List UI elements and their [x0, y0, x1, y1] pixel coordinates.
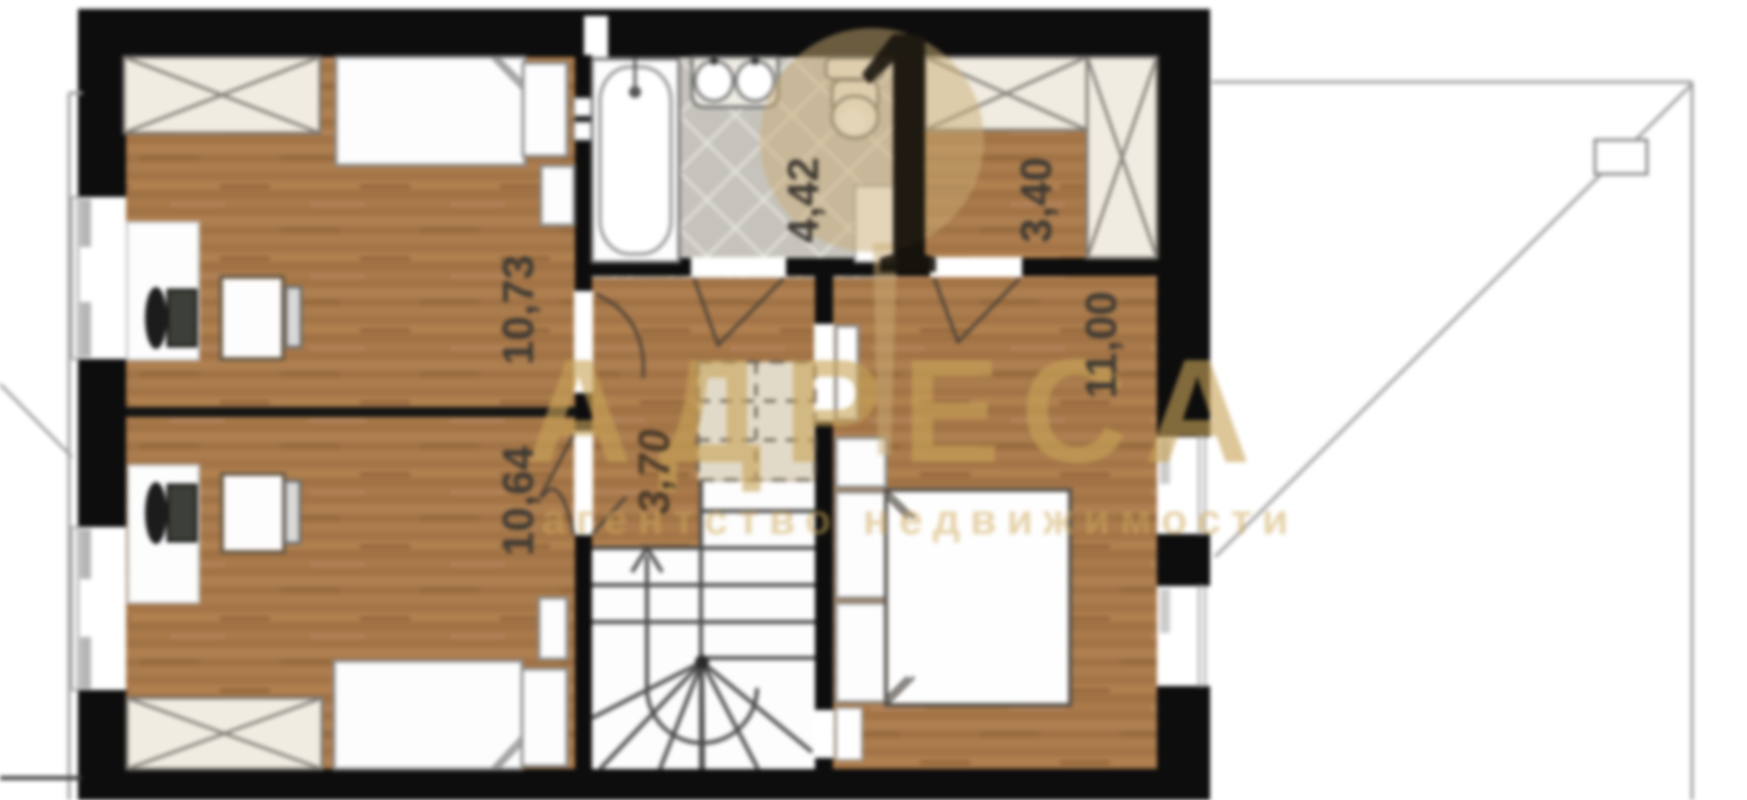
svg-text:3,40: 3,40 — [1012, 157, 1061, 243]
svg-text:10,73: 10,73 — [494, 255, 543, 365]
svg-text:11,00: 11,00 — [1077, 291, 1126, 399]
svg-text:3,70: 3,70 — [630, 425, 679, 517]
svg-text:10,64: 10,64 — [494, 445, 543, 556]
svg-text:4,42: 4,42 — [779, 157, 828, 243]
